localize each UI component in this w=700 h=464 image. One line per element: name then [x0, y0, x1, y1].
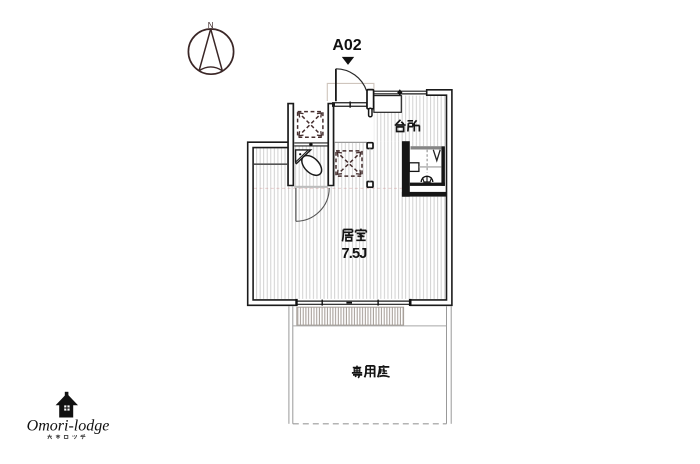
svg-text:A02: A02: [332, 37, 361, 54]
svg-text:Omori-lodge: Omori-lodge: [27, 418, 110, 435]
svg-text:N: N: [208, 21, 214, 30]
svg-text:7.5J: 7.5J: [341, 246, 367, 262]
